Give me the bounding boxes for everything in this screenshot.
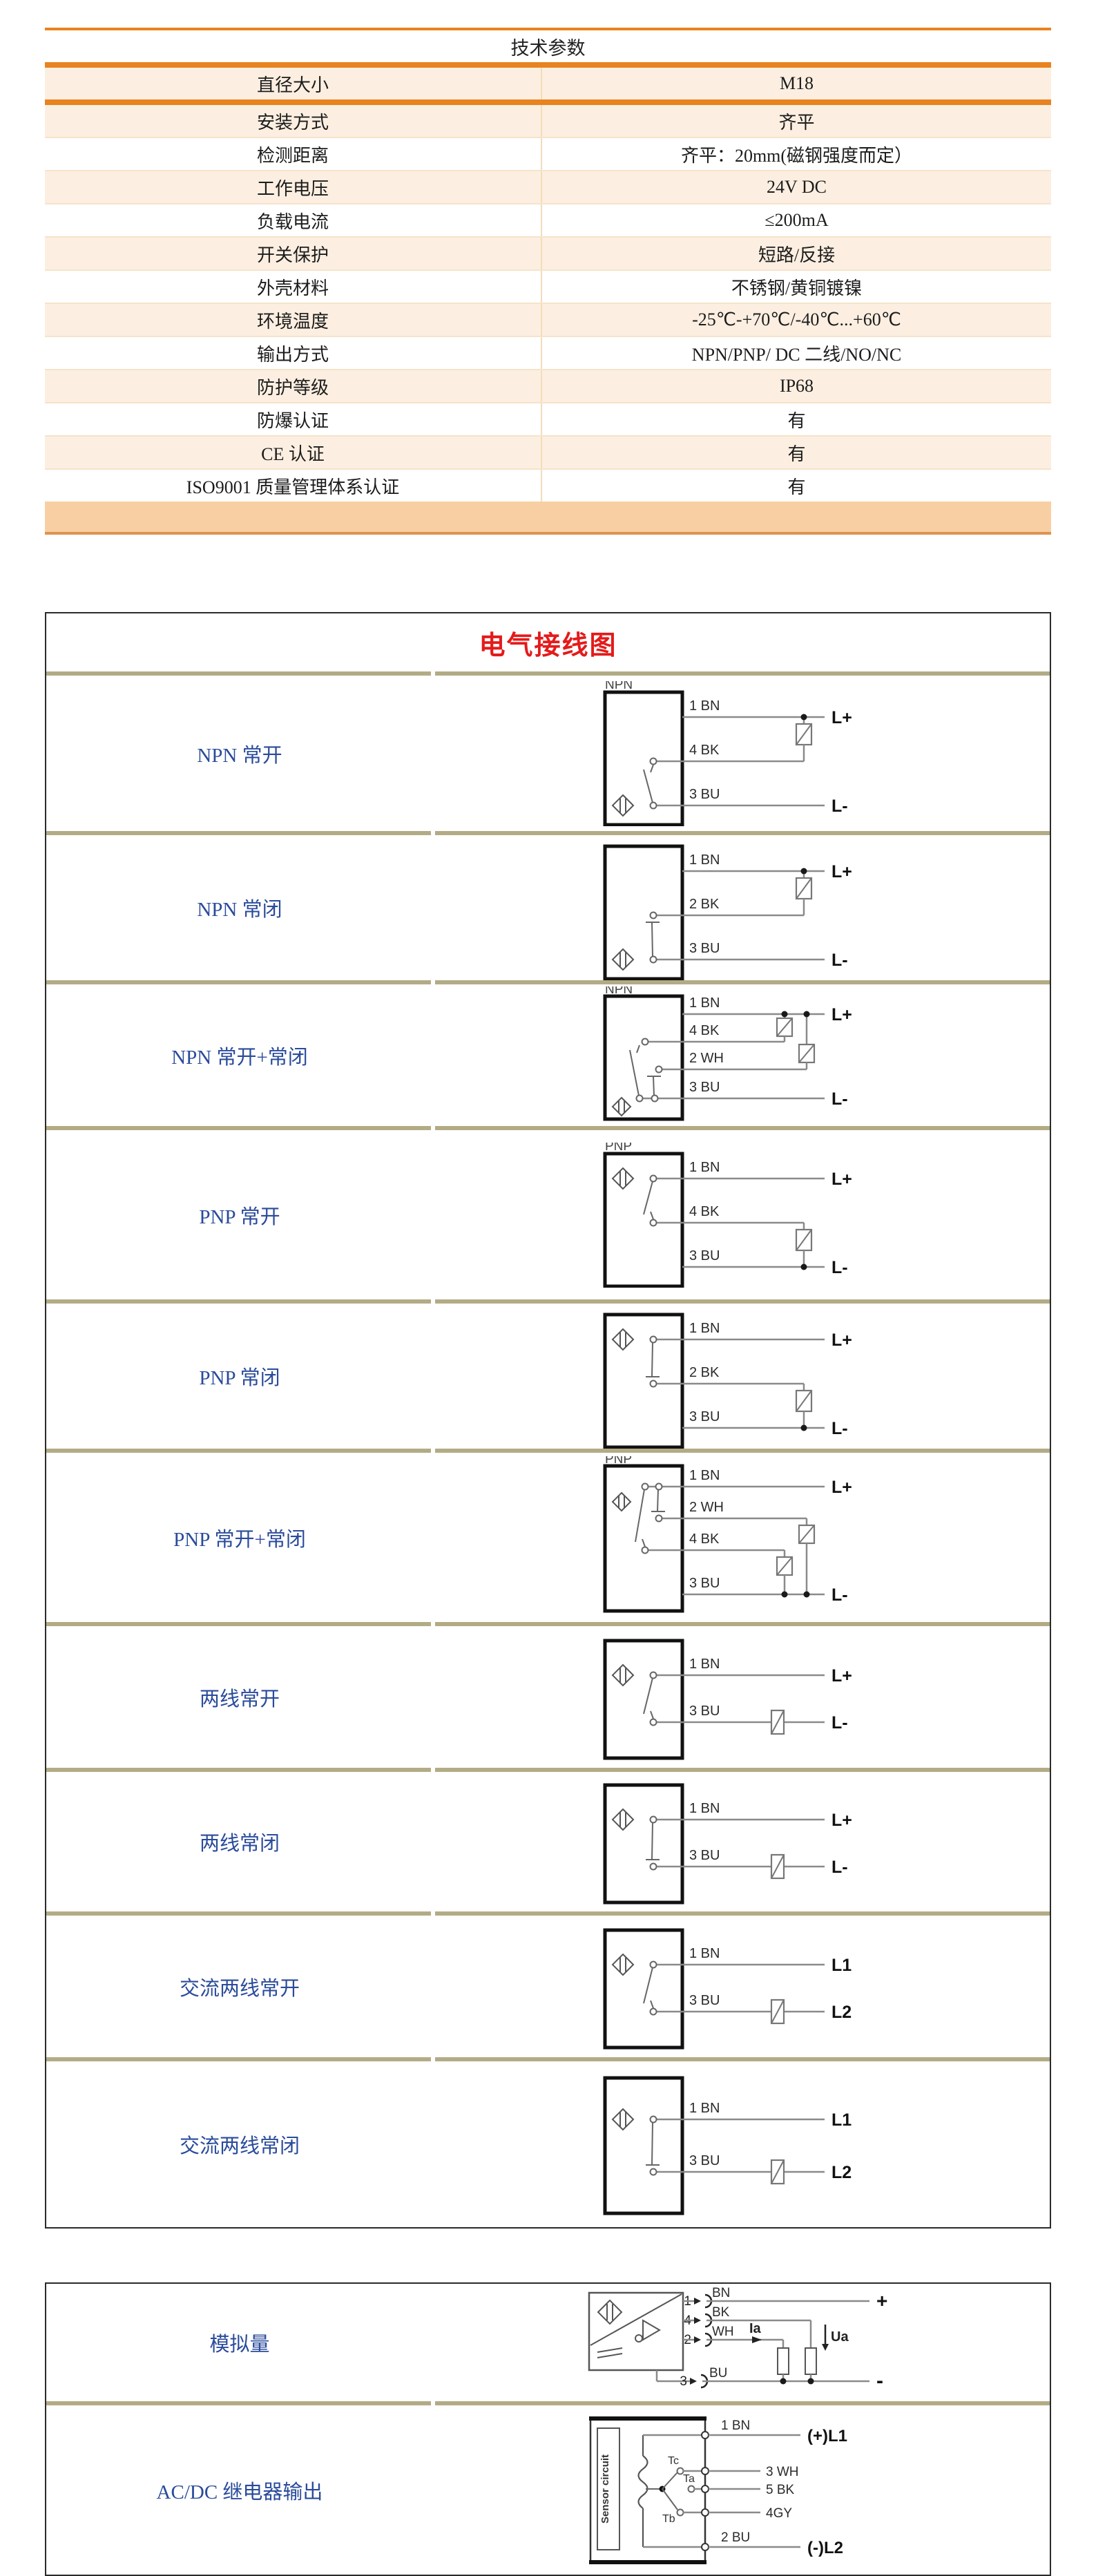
spec-row: 输出方式NPN/PNP/ DC 二线/NO/NC [45, 337, 1051, 370]
svg-text:L-: L- [831, 1585, 848, 1605]
svg-text:1 BN: 1 BN [721, 2418, 750, 2433]
spec-value: 24V DC [542, 171, 1051, 203]
svg-text:L-: L- [831, 1858, 848, 1877]
svg-text:BU: BU [709, 2366, 727, 2381]
spec-value: -25℃-+70℃/-40℃...+60℃ [542, 304, 1051, 336]
spec-row: CE 认证有 [45, 437, 1051, 470]
svg-text:3 BU: 3 BU [689, 941, 720, 956]
svg-text:4 BK: 4 BK [689, 743, 720, 758]
spec-label: 外壳材料 [45, 271, 542, 303]
spec-value: 有 [542, 437, 1051, 468]
spec-table-body: 直径大小M18安装方式齐平检测距离齐平：20mm(磁钢强度而定）工作电压24V … [45, 68, 1051, 502]
svg-text:1 BN: 1 BN [689, 1321, 720, 1336]
wiring-row-label: PNP 常开 [46, 1130, 433, 1299]
svg-text:1 BN: 1 BN [689, 698, 720, 714]
spec-label: CE 认证 [45, 437, 542, 468]
wiring-row-diagram: 1 BN3 BUL+L- [433, 1626, 1050, 1768]
svg-text:L1: L1 [831, 1956, 852, 1975]
wiring-row-label: NPN 常闭 [46, 835, 433, 980]
analog-relay-table: 模拟量1BN+4BK2WHIaUa3BU-AC/DC 继电器输出Sensor c… [45, 2282, 1051, 2576]
wiring-row-diagram: NPN1 BN4 BK3 BUL+L- [433, 676, 1050, 831]
svg-text:L-: L- [831, 951, 848, 970]
svg-text:3 BU: 3 BU [689, 1080, 720, 1095]
spec-table-footer-band [45, 502, 1051, 535]
spec-label: 负载电流 [45, 204, 542, 236]
wiring-row: 交流两线常闭1 BN3 BUL1L2 [46, 2061, 1050, 2227]
svg-text:L-: L- [831, 1089, 848, 1109]
svg-text:L-: L- [831, 1419, 848, 1438]
svg-text:2 BU: 2 BU [721, 2530, 750, 2545]
spec-label: 安装方式 [45, 105, 542, 137]
svg-text:3 BU: 3 BU [689, 1576, 720, 1591]
spec-label: 防爆认证 [45, 403, 542, 435]
wiring-row: PNP 常开+常闭PNP1 BN2 WH4 BK3 BUL+L- [46, 1453, 1050, 1622]
svg-text:3 BU: 3 BU [689, 1248, 720, 1263]
svg-text:L+: L+ [831, 1811, 852, 1830]
svg-text:1 BN: 1 BN [689, 1657, 720, 1672]
svg-text:2 BK: 2 BK [689, 1365, 720, 1380]
wiring-row-diagram: Sensor circuitTcTaTb1 BN(+)L13 WH5 BK4GY… [433, 2405, 1050, 2575]
svg-text:1 BN: 1 BN [689, 995, 720, 1011]
wiring-diagram-dc3p-nc: 1 BN2 BK3 BUL+L- [597, 1304, 887, 1449]
spec-label: 环境温度 [45, 304, 542, 336]
spec-table-title: 技术参数 [45, 30, 1051, 62]
wiring-row-label: 交流两线常开 [46, 1916, 433, 2057]
wiring-row-label: NPN 常开+常闭 [46, 984, 433, 1126]
wiring-diagram-dc3n-no: NPN1 BN4 BK3 BUL+L- [597, 681, 887, 826]
wiring-row: 模拟量1BN+4BK2WHIaUa3BU- [46, 2284, 1050, 2401]
svg-text:NPN: NPN [605, 986, 633, 997]
svg-text:4 BK: 4 BK [689, 1204, 720, 1219]
svg-text:1 BN: 1 BN [689, 852, 720, 868]
svg-text:L+: L+ [831, 1170, 852, 1189]
wiring-diagram-two-wire-nc: 1 BN3 BUL1L2 [597, 2067, 887, 2222]
wiring-row-diagram: 1 BN3 BUL1L2 [433, 2061, 1050, 2227]
wiring-diagram-dc3n-nc: 1 BN2 BK3 BUL+L- [597, 835, 887, 980]
svg-text:3 BU: 3 BU [689, 2153, 720, 2168]
wiring-row: 两线常闭1 BN3 BUL+L- [46, 1772, 1050, 1911]
spec-row: 环境温度-25℃-+70℃/-40℃...+60℃ [45, 304, 1051, 337]
datasheet-page: 技术参数 直径大小M18安装方式齐平检测距离齐平：20mm(磁钢强度而定）工作电… [0, 0, 1096, 2576]
wiring-row-label: 模拟量 [46, 2284, 433, 2401]
svg-text:L+: L+ [831, 1005, 852, 1024]
orange-separator [45, 62, 1051, 68]
svg-text:3 BU: 3 BU [689, 787, 720, 802]
spec-label: 直径大小 [45, 68, 542, 99]
spec-table: 技术参数 直径大小M18安装方式齐平检测距离齐平：20mm(磁钢强度而定）工作电… [45, 28, 1051, 535]
wiring-diagram-dc4n: NPN1 BN4 BK2 WH3 BUL+L- [597, 986, 887, 1125]
wiring-diagram-two-wire-nc: 1 BN3 BUL+L- [597, 1775, 887, 1908]
svg-text:Ua: Ua [831, 2329, 849, 2345]
wiring-row-label: AC/DC 继电器输出 [46, 2405, 433, 2575]
wiring-row-label: 交流两线常闭 [46, 2061, 433, 2227]
spec-row: 防爆认证有 [45, 403, 1051, 437]
svg-text:L+: L+ [831, 1666, 852, 1686]
spec-row: 安装方式齐平 [45, 105, 1051, 138]
svg-text:-: - [876, 2369, 883, 2392]
svg-text:1 BN: 1 BN [689, 2101, 720, 2116]
wiring-row: AC/DC 继电器输出Sensor circuitTcTaTb1 BN(+)L1… [46, 2405, 1050, 2575]
svg-text:L-: L- [831, 1713, 848, 1733]
svg-text:L1: L1 [831, 2110, 852, 2130]
spec-row: 开关保护短路/反接 [45, 238, 1051, 271]
wiring-row-diagram: 1BN+4BK2WHIaUa3BU- [433, 2284, 1050, 2401]
svg-text:L+: L+ [831, 1478, 852, 1497]
spec-value: ≤200mA [542, 204, 1051, 236]
svg-text:1 BN: 1 BN [689, 1946, 720, 1961]
svg-text:(-)L2: (-)L2 [807, 2539, 843, 2557]
wiring-table: 电气接线图 NPN 常开NPN1 BN4 BK3 BUL+L-NPN 常闭1 B… [45, 612, 1051, 2229]
svg-text:3 WH: 3 WH [766, 2465, 799, 2479]
svg-text:3 BU: 3 BU [689, 1409, 720, 1424]
svg-text:L+: L+ [831, 1330, 852, 1350]
spec-label: ISO9001 质量管理体系认证 [45, 470, 542, 502]
svg-text:WH: WH [712, 2325, 734, 2339]
wiring-diagram-relay: Sensor circuitTcTaTb1 BN(+)L13 WH5 BK4GY… [579, 2412, 904, 2569]
svg-text:Ia: Ia [749, 2321, 762, 2336]
spec-value: NPN/PNP/ DC 二线/NO/NC [542, 337, 1051, 369]
svg-text:1 BN: 1 BN [689, 1468, 720, 1483]
wiring-table-body: NPN 常开NPN1 BN4 BK3 BUL+L-NPN 常闭1 BN2 BK3… [46, 676, 1050, 2227]
svg-text:BK: BK [712, 2305, 730, 2320]
svg-text:L+: L+ [831, 708, 852, 727]
svg-text:3 BU: 3 BU [689, 1848, 720, 1863]
spec-value: 短路/反接 [542, 238, 1051, 269]
orange-separator [45, 99, 1051, 105]
svg-text:NPN: NPN [605, 681, 633, 692]
wiring-row: NPN 常闭1 BN2 BK3 BUL+L- [46, 835, 1050, 980]
svg-text:4 BK: 4 BK [689, 1532, 720, 1547]
wiring-diagram-analog: 1BN+4BK2WHIaUa3BU- [579, 2287, 904, 2398]
svg-text:3 BU: 3 BU [689, 1704, 720, 1719]
spec-label: 输出方式 [45, 337, 542, 369]
svg-text:PNP: PNP [605, 1143, 632, 1154]
spec-row: 检测距离齐平：20mm(磁钢强度而定） [45, 138, 1051, 171]
spec-value: IP68 [542, 370, 1051, 402]
spec-value: 齐平 [542, 105, 1051, 137]
wiring-row-diagram: NPN1 BN4 BK2 WH3 BUL+L- [433, 984, 1050, 1126]
wiring-row: PNP 常闭1 BN2 BK3 BUL+L- [46, 1304, 1050, 1449]
svg-text:Ta: Ta [683, 2473, 695, 2485]
wiring-diagram-two-wire-no: 1 BN3 BUL1L2 [597, 1920, 887, 2053]
svg-text:L-: L- [831, 796, 848, 816]
spec-value: 有 [542, 403, 1051, 435]
spec-label: 开关保护 [45, 238, 542, 269]
spec-row: 负载电流≤200mA [45, 204, 1051, 238]
wiring-row-label: 两线常开 [46, 1626, 433, 1768]
spec-row: 直径大小M18 [45, 68, 1051, 99]
spec-label: 防护等级 [45, 370, 542, 402]
svg-text:4 BK: 4 BK [689, 1023, 720, 1038]
svg-text:3 BU: 3 BU [689, 1993, 720, 2008]
svg-text:Tb: Tb [662, 2513, 675, 2525]
wiring-row-label: PNP 常闭 [46, 1304, 433, 1449]
wiring-row-label: 两线常闭 [46, 1772, 433, 1911]
svg-text:2 WH: 2 WH [689, 1051, 724, 1066]
wiring-row: NPN 常开+常闭NPN1 BN4 BK2 WH3 BUL+L- [46, 984, 1050, 1126]
wiring-row-diagram: 1 BN3 BUL1L2 [433, 1916, 1050, 2057]
svg-text:Tc: Tc [668, 2455, 679, 2467]
svg-text:L-: L- [831, 1258, 848, 1277]
spec-value: 齐平：20mm(磁钢强度而定） [542, 138, 1051, 170]
spec-label: 检测距离 [45, 138, 542, 170]
spec-value: M18 [542, 68, 1051, 99]
wiring-row-label: NPN 常开 [46, 676, 433, 831]
svg-text:2 BK: 2 BK [689, 897, 720, 912]
wiring-diagram-two-wire-no: 1 BN3 BUL+L- [597, 1631, 887, 1764]
spec-row: ISO9001 质量管理体系认证有 [45, 470, 1051, 502]
wiring-row-label: PNP 常开+常闭 [46, 1453, 433, 1622]
analog-relay-table-body: 模拟量1BN+4BK2WHIaUa3BU-AC/DC 继电器输出Sensor c… [46, 2284, 1050, 2575]
wiring-diagram-dc3p-no: PNP1 BN4 BK3 BUL+L- [597, 1143, 887, 1288]
spec-row: 外壳材料不锈钢/黄铜镀镍 [45, 271, 1051, 304]
wiring-row-diagram: 1 BN2 BK3 BUL+L- [433, 835, 1050, 980]
svg-text:5 BK: 5 BK [766, 2483, 795, 2497]
svg-text:+: + [876, 2290, 887, 2311]
spec-label: 工作电压 [45, 171, 542, 203]
wiring-row-diagram: 1 BN3 BUL+L- [433, 1772, 1050, 1911]
wiring-row-diagram: PNP1 BN4 BK3 BUL+L- [433, 1130, 1050, 1299]
wiring-row-diagram: PNP1 BN2 WH4 BK3 BUL+L- [433, 1453, 1050, 1622]
wiring-table-title: 电气接线图 [46, 613, 1050, 671]
spec-value: 有 [542, 470, 1051, 502]
wiring-row: PNP 常开PNP1 BN4 BK3 BUL+L- [46, 1130, 1050, 1299]
wiring-row: NPN 常开NPN1 BN4 BK3 BUL+L- [46, 676, 1050, 831]
svg-text:Sensor circuit: Sensor circuit [599, 2454, 611, 2523]
wiring-row-diagram: 1 BN2 BK3 BUL+L- [433, 1304, 1050, 1449]
svg-text:PNP: PNP [605, 1456, 632, 1467]
svg-text:L2: L2 [831, 2163, 852, 2182]
spec-row: 防护等级IP68 [45, 370, 1051, 403]
wiring-row: 交流两线常开1 BN3 BUL1L2 [46, 1916, 1050, 2057]
wiring-diagram-dc4p: PNP1 BN2 WH4 BK3 BUL+L- [597, 1456, 887, 1619]
svg-text:L+: L+ [831, 862, 852, 881]
svg-text:1 BN: 1 BN [689, 1160, 720, 1175]
svg-text:BN: BN [712, 2287, 730, 2300]
wiring-row: 两线常开1 BN3 BUL+L- [46, 1626, 1050, 1768]
svg-text:L2: L2 [831, 2003, 852, 2022]
svg-text:(+)L1: (+)L1 [807, 2427, 847, 2445]
spec-row: 工作电压24V DC [45, 171, 1051, 204]
svg-text:1 BN: 1 BN [689, 1801, 720, 1816]
spec-value: 不锈钢/黄铜镀镍 [542, 271, 1051, 303]
svg-text:2 WH: 2 WH [689, 1500, 724, 1515]
svg-text:3: 3 [680, 2374, 687, 2389]
svg-text:4GY: 4GY [766, 2506, 792, 2521]
